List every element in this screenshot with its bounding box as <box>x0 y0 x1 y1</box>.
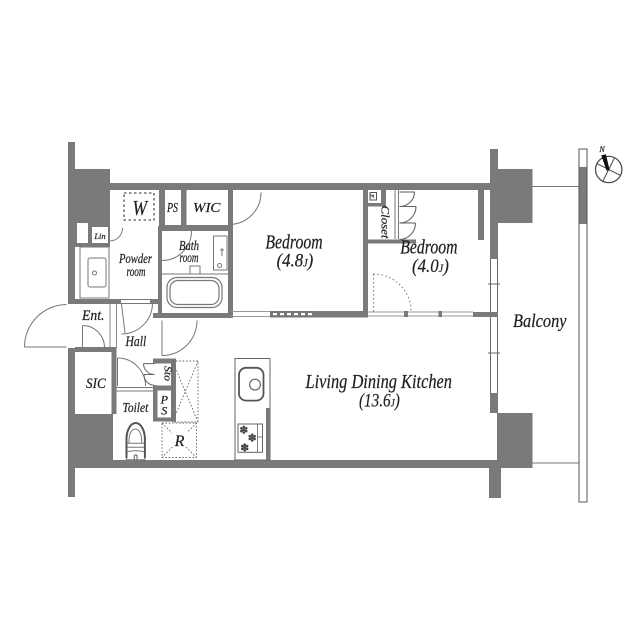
svg-text:Ent.: Ent. <box>81 308 104 324</box>
svg-text:SIC: SIC <box>86 376 106 392</box>
svg-text:Hall: Hall <box>125 334 147 350</box>
svg-text:S: S <box>161 404 167 418</box>
svg-text:PS: PS <box>166 200 178 215</box>
svg-text:R: R <box>174 433 185 450</box>
svg-text:(4.8J): (4.8J) <box>277 251 314 272</box>
svg-text:Sto: Sto <box>161 366 172 381</box>
svg-text:Lin: Lin <box>93 231 105 241</box>
svg-text:room: room <box>127 264 146 279</box>
svg-text:Toilet: Toilet <box>123 400 150 415</box>
svg-text:Balcony: Balcony <box>513 312 567 332</box>
svg-text:WIC: WIC <box>193 200 221 215</box>
svg-text:N: N <box>598 145 605 154</box>
svg-text:E: E <box>368 193 374 198</box>
svg-text:W: W <box>133 196 150 220</box>
svg-text:Closet: Closet <box>379 206 391 240</box>
svg-text:room: room <box>180 250 199 265</box>
svg-text:(4.0J): (4.0J) <box>412 256 449 277</box>
